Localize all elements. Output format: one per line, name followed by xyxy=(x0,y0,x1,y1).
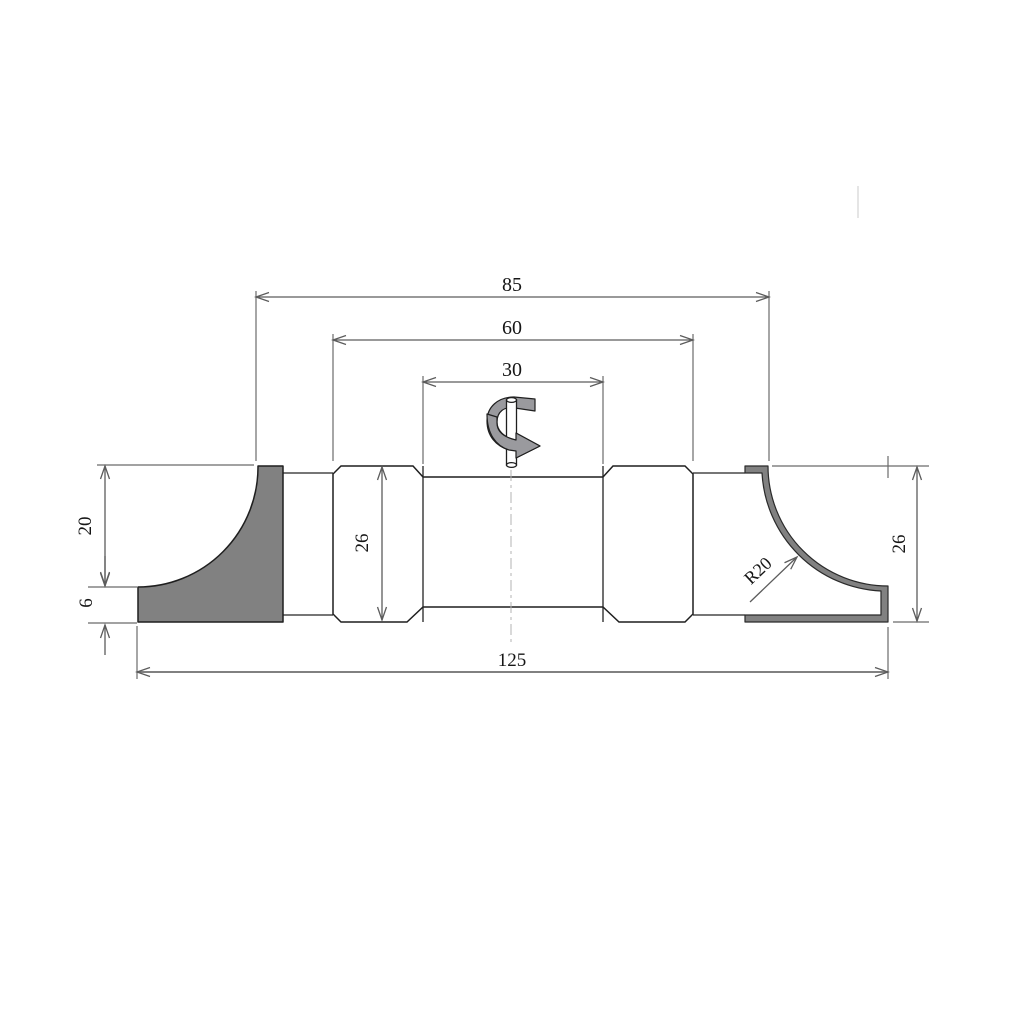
dimension-125-group: 125 xyxy=(137,626,888,679)
dimension-label-20: 20 xyxy=(75,517,96,536)
dimension-label-26-right: 26 xyxy=(889,535,910,554)
body-outline xyxy=(333,466,693,622)
spindle-axis-top-cap xyxy=(507,398,517,403)
right-knife-profile xyxy=(745,466,888,622)
rotation-indicator xyxy=(487,397,540,467)
dimension-6-group: 6 xyxy=(76,556,137,655)
left-knife-profile xyxy=(138,466,283,622)
dimension-label-26-left: 26 xyxy=(352,534,373,553)
radius-callout-group: R20 xyxy=(740,553,797,602)
technical-drawing-page: 85 60 30 20 6 26 26 125 xyxy=(0,0,1024,1024)
spindle-axis-bottom-cap xyxy=(507,463,517,468)
dimension-26-right-group: 26 xyxy=(772,456,929,622)
technical-drawing: 85 60 30 20 6 26 26 125 xyxy=(0,0,1024,1024)
dimension-label-30: 30 xyxy=(502,359,522,381)
dimension-label-85: 85 xyxy=(502,274,522,296)
spindle-axis xyxy=(507,400,517,465)
dimension-26-left-group: 26 xyxy=(352,467,382,620)
dimension-label-6: 6 xyxy=(76,598,97,608)
dimension-label-125: 125 xyxy=(498,650,527,671)
dimension-label-60: 60 xyxy=(502,317,522,339)
